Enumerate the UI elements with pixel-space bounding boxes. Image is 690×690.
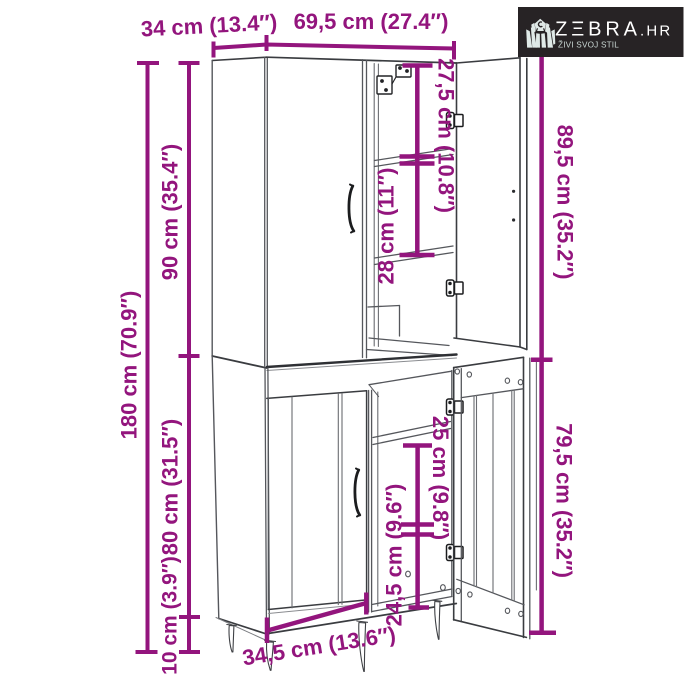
svg-text:89,5 cm (35.2″): 89,5 cm (35.2″)	[553, 125, 578, 280]
svg-text:27,5 cm (10.8″): 27,5 cm (10.8″)	[434, 58, 459, 213]
svg-text:24,5 cm (9.6″): 24,5 cm (9.6″)	[382, 484, 407, 627]
svg-text:90 cm (35.4″): 90 cm (35.4″)	[158, 144, 183, 281]
svg-text:ŽIVI SVOJ STIL: ŽIVI SVOJ STIL	[558, 39, 619, 49]
svg-text:80 cm (31.5″): 80 cm (31.5″)	[158, 419, 183, 556]
svg-text:10 cm (3.9″): 10 cm (3.9″)	[159, 556, 182, 675]
svg-text:.HR: .HR	[640, 23, 672, 40]
svg-text:79,5 cm (35.2″): 79,5 cm (35.2″)	[552, 423, 577, 578]
svg-text:25 cm (9.8″): 25 cm (9.8″)	[428, 416, 453, 540]
svg-text:ZΞBRA: ZΞBRA	[555, 19, 641, 41]
svg-text:28 cm (11″): 28 cm (11″)	[374, 168, 399, 285]
svg-text:180 cm (70.9″): 180 cm (70.9″)	[117, 291, 142, 440]
svg-text:69,5 cm (27.4″): 69,5 cm (27.4″)	[294, 9, 449, 34]
